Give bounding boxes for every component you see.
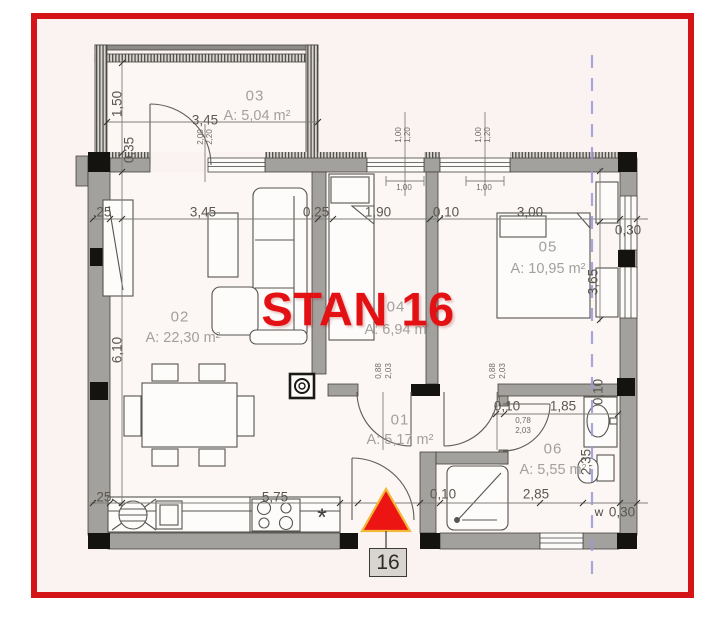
toilet-tank [597,455,614,481]
room-06-area: A: 5,55 m² [520,463,587,478]
bath-sink [587,405,609,437]
dim-door05-width: 0,88 [489,363,497,379]
apartment-title: STAN 16 [261,286,454,333]
dim-window1-sill: 1,00 [396,184,412,192]
room-05-area: A: 10,95 m² [511,262,586,277]
room-03-area: A: 5,04 m² [224,109,291,124]
chair [199,449,225,466]
room-05-number: 05 [539,240,558,255]
dim-balcony-door-height: 2,20 [206,129,214,145]
dim-balcony-depth: 1,50 [110,91,124,117]
coffee-table [208,213,238,277]
dim-bath-bottom-width: 2,85 [523,487,549,501]
dim-window1-height: 1,20 [404,127,412,143]
dim-wall-right: 0,30 [615,223,641,237]
dim-door05-height: 2,03 [499,363,507,379]
dim-bath-height: 2,35 [579,449,593,475]
room-02-area: A: 22,30 m² [146,331,221,346]
dim-kitchen-width: 5,75 [262,490,288,504]
dim-balcony-width: 3,45 [192,113,218,127]
dim-wall-top: 0,35 [122,137,136,163]
floor-plan-page: Dogma [0,0,727,619]
dim-room04-width: 1,90 [365,205,391,219]
dim-living-height: 6,10 [110,337,124,363]
dim-entry-wall: 0,10 [430,487,456,501]
unit-number-tag: 16 [369,548,407,577]
room-01-area: A: 5,17 m² [367,433,434,448]
dim-bath-door-height: 2,03 [515,427,531,435]
dim-window2-width: 1,00 [475,127,483,143]
dim-bath-door-width: 0,78 [515,417,531,425]
window-mark: w [595,506,604,518]
sofa-chaise [212,287,258,335]
room-01-number: 01 [391,413,410,428]
dim-bottom-wall: 0,30 [609,505,635,519]
room-03-number: 03 [246,89,265,104]
dining-table [142,383,237,447]
dim-balcony-door-width: 2,00 [197,129,205,145]
nightstand [596,182,618,223]
dim-window2-sill: 1,00 [476,184,492,192]
room-06-number: 06 [544,442,563,457]
chair [124,396,141,436]
dim-window1-width: 1,00 [395,127,403,143]
dim-wall-mid: 0,25 [303,205,329,219]
dim-wall-thin: 0,10 [433,205,459,219]
dim-room05-height: 3,65 [586,269,600,295]
dim-door04-width: 0,88 [375,363,383,379]
dim-bath-width: 1,85 [550,399,576,413]
dim-door04-height: 2,03 [385,363,393,379]
dim-bath-wall: 0,10 [494,399,520,413]
chair [152,364,178,381]
dim-living-width: 3,45 [190,205,216,219]
flue-shaft [290,374,314,398]
dim-room05-width: 3,00 [517,205,543,219]
kitchen-symbol-icon: * [317,506,327,531]
chair [152,449,178,466]
room-02-number: 02 [171,310,190,325]
dim-window2-height: 1,20 [484,127,492,143]
dim-bottom-offset: ,25 [93,490,112,504]
dim-bath-wall-right: 0,10 [591,379,605,405]
dim-left-offset: ,25 [93,205,112,219]
pillow [331,177,369,203]
chair [237,396,254,436]
chair [199,364,225,381]
